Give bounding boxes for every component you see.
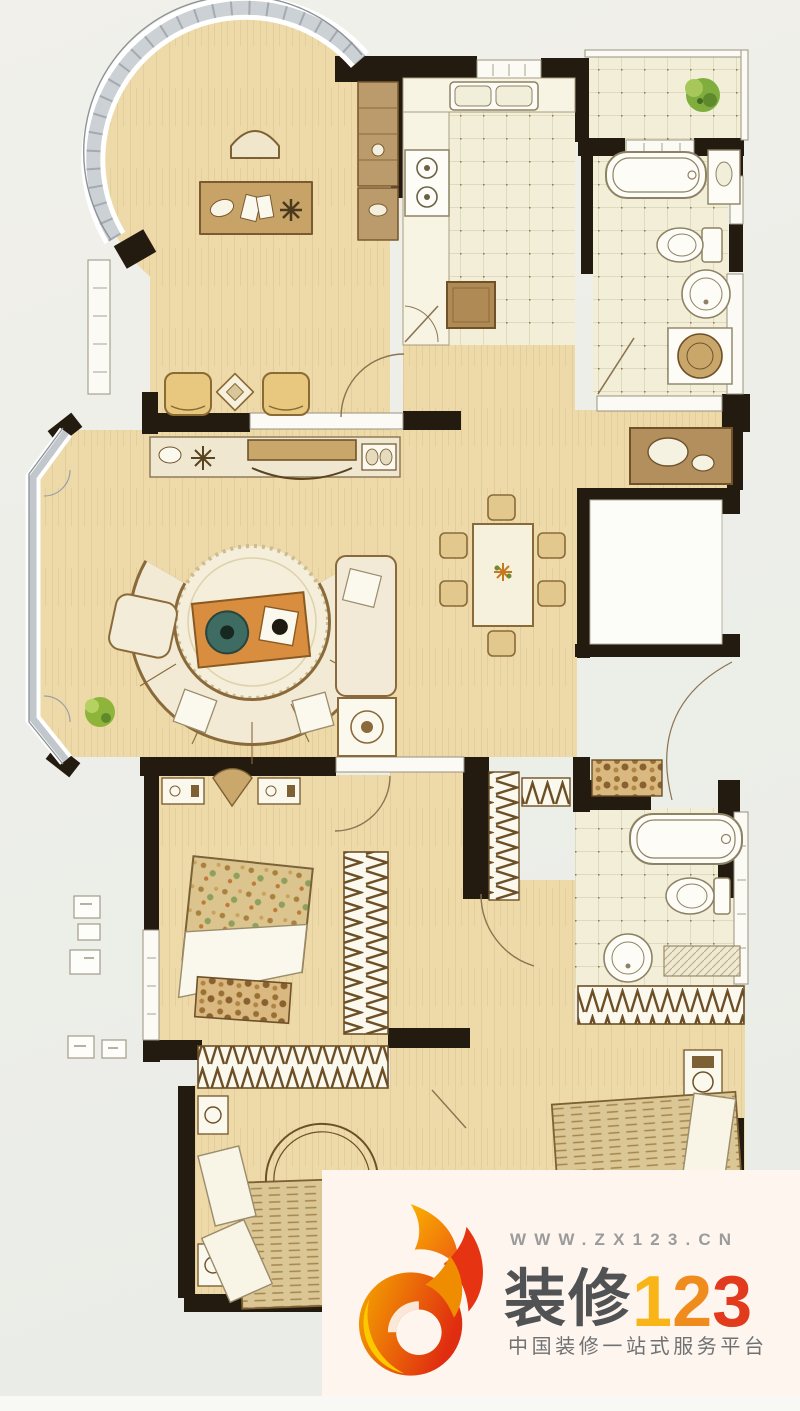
entry-rug xyxy=(592,760,662,796)
study-armchairs xyxy=(165,373,309,415)
washing-machine xyxy=(668,328,732,384)
watermark-tagline: 中国装修一站式服务平台 xyxy=(508,1330,768,1359)
toilet xyxy=(657,228,722,262)
exterior-marks xyxy=(68,896,126,1058)
master-washbasin xyxy=(604,934,652,982)
bath-mat xyxy=(664,946,740,976)
closet-vertical xyxy=(489,772,519,900)
tv-console xyxy=(150,437,400,479)
wardrobe-bottom xyxy=(198,1046,388,1088)
master-toilet xyxy=(666,878,730,914)
bathtub xyxy=(606,152,706,198)
media-cabinet xyxy=(338,698,396,756)
stairwell-void xyxy=(590,500,722,644)
watermark-brand: 装修123 xyxy=(504,1248,752,1343)
zx123-logo xyxy=(348,1200,498,1386)
coffee-table xyxy=(192,592,310,667)
master-bathtub xyxy=(630,814,742,864)
desk-fan-icon xyxy=(280,199,302,221)
closet-horizontal xyxy=(522,778,570,806)
stove xyxy=(405,150,449,216)
bench xyxy=(195,977,292,1023)
floor-plan-screenshot: WWW.ZX123.CN 装修123 中国装修一站式服务平台 xyxy=(0,0,800,1411)
nightstand xyxy=(198,1096,228,1134)
scan-edge xyxy=(0,1396,800,1411)
living-plant xyxy=(85,697,115,727)
kitchen-island xyxy=(447,282,495,328)
washbasin xyxy=(682,270,730,318)
wardrobe-right xyxy=(344,852,388,1034)
armchair xyxy=(107,592,179,660)
brand-cn: 装修 xyxy=(504,1265,632,1334)
master-wardrobe xyxy=(578,986,744,1024)
watermark-url: WWW.ZX123.CN xyxy=(510,1230,739,1250)
tv xyxy=(248,440,356,460)
kitchen-sink xyxy=(450,82,538,110)
sideboard-counter xyxy=(630,428,732,484)
watermark-panel: WWW.ZX123.CN 装修123 中国装修一站式服务平台 xyxy=(322,1170,800,1411)
